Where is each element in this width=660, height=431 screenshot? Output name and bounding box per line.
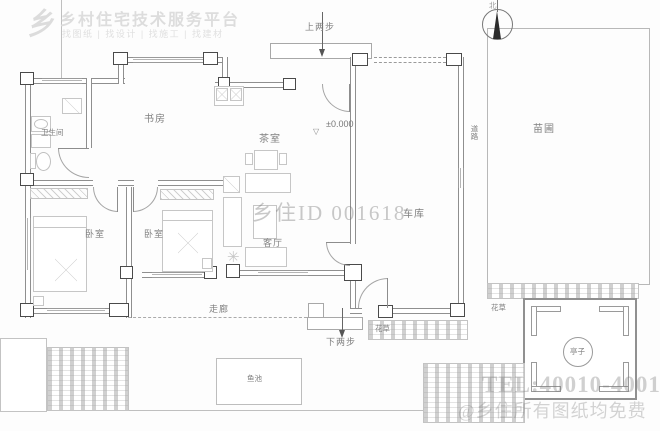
side-table <box>245 247 287 267</box>
column <box>20 72 34 85</box>
planting-bed-right <box>423 363 525 423</box>
column <box>283 78 296 90</box>
bedroom-left-door-arc <box>93 187 118 212</box>
sofa-side <box>223 197 242 247</box>
garage-side-door-arc <box>326 242 350 266</box>
bed-blanket-fold <box>178 232 198 254</box>
window <box>133 57 205 63</box>
level-label: ±0.000 <box>326 119 353 129</box>
bedroom-right-door-leaf <box>133 187 134 212</box>
level-symbol: ▽ <box>313 127 320 136</box>
corridor-label: 走廊 <box>209 302 229 315</box>
north-arrow-icon <box>493 11 501 39</box>
wall-segment <box>126 187 132 318</box>
column <box>226 264 240 278</box>
window <box>258 270 308 276</box>
plant-symbol-icon: ✳ <box>227 248 241 266</box>
site-boundary-line-top <box>61 0 62 78</box>
pavilion-bench <box>623 306 629 336</box>
window <box>152 272 202 278</box>
flowers-east-label: 花草 <box>491 302 506 313</box>
wall-segment <box>25 180 93 186</box>
garage-south-door-arc <box>358 278 388 308</box>
tea-table <box>254 150 278 170</box>
watermark-logo-title: 乡村住宅技术服务平台 <box>60 6 240 30</box>
column <box>450 303 465 317</box>
bedroom-right-label: 卧室 <box>144 227 164 240</box>
garage-side-door-leaf <box>326 242 350 243</box>
nightstand <box>33 296 44 306</box>
wardrobe <box>30 188 88 199</box>
fish-pond-label: 鱼池 <box>247 373 262 384</box>
window <box>458 168 464 188</box>
corridor-edge-dashed-line <box>128 317 312 318</box>
nursery-label: 苗圃 <box>533 120 555 135</box>
tea-chair <box>279 153 287 165</box>
tv-cabinet <box>223 176 240 193</box>
wall-segment <box>86 78 92 148</box>
nursery-plot <box>487 28 650 285</box>
tea-room-label: 茶室 <box>259 130 281 145</box>
window <box>42 78 82 84</box>
nightstand <box>202 258 212 269</box>
bathroom-door-leaf <box>58 148 89 149</box>
coffee-table <box>253 205 277 239</box>
column <box>113 52 128 65</box>
column <box>203 52 218 65</box>
counter-basin <box>230 88 242 101</box>
steps-platform <box>307 317 363 330</box>
bed-blanket-fold <box>55 258 77 282</box>
wall-segment <box>350 57 356 244</box>
wall-segment <box>158 180 230 186</box>
brand-logo-icon: 乡 <box>23 0 56 44</box>
column <box>20 173 34 186</box>
toilet-bowl <box>36 152 51 171</box>
bed-pillow-band <box>162 210 213 221</box>
planting-bed <box>47 347 129 411</box>
flowers-south-label: 花草 <box>375 323 390 334</box>
pavilion-bench <box>531 306 537 336</box>
wardrobe <box>160 189 214 200</box>
steps-landing-box <box>308 303 324 318</box>
bed-pillow-band <box>33 216 87 228</box>
bathroom-door-arc <box>58 148 89 178</box>
site-pad <box>0 338 47 412</box>
watermark-logo-subtitle: 找图纸 | 找设计 | 找施工 | 找建材 <box>62 27 224 40</box>
window <box>47 308 105 314</box>
entry-door-leaf <box>349 84 350 112</box>
bedroom-left-door-leaf <box>117 187 118 212</box>
study-label: 书房 <box>144 110 166 125</box>
steps-up-label: 上两步 <box>305 20 335 33</box>
pavilion-label: 亭子 <box>570 346 585 357</box>
column <box>109 303 129 317</box>
column <box>344 264 362 281</box>
living-room-label: 客厅 <box>263 236 283 249</box>
steps-down-arrow-line <box>342 308 343 332</box>
column <box>20 303 34 317</box>
garage-label: 车库 <box>403 205 425 220</box>
entry-door-arc <box>322 84 350 112</box>
bedroom-left-label: 卧室 <box>85 227 105 240</box>
bathroom-label: 卫生间 <box>41 127 64 138</box>
north-label: 北 <box>489 0 497 11</box>
column <box>120 266 133 279</box>
bedroom-right-door-arc <box>133 187 158 212</box>
column <box>352 53 368 66</box>
wall-segment <box>350 308 362 314</box>
steps-up-arrow-head-icon <box>319 49 325 57</box>
wall-segment <box>118 180 134 186</box>
floor-plan-canvas: 苗圃 花草 道路 北 亭子 花草 鱼池 上两步 <box>0 0 660 431</box>
counter-basin <box>216 88 228 101</box>
nursery-south-hatch <box>487 283 639 299</box>
column <box>446 53 462 66</box>
pavilion-bench <box>599 386 629 392</box>
pavilion-bench <box>531 386 561 392</box>
garage-south-door-leaf <box>387 278 388 308</box>
sofa-main <box>245 173 291 193</box>
window <box>25 218 31 270</box>
shower-tray <box>62 98 82 114</box>
road-label: 道路 <box>469 125 480 140</box>
tea-chair <box>245 153 253 165</box>
steps-down-label: 下两步 <box>326 335 356 348</box>
garage-door-opening <box>374 57 446 63</box>
